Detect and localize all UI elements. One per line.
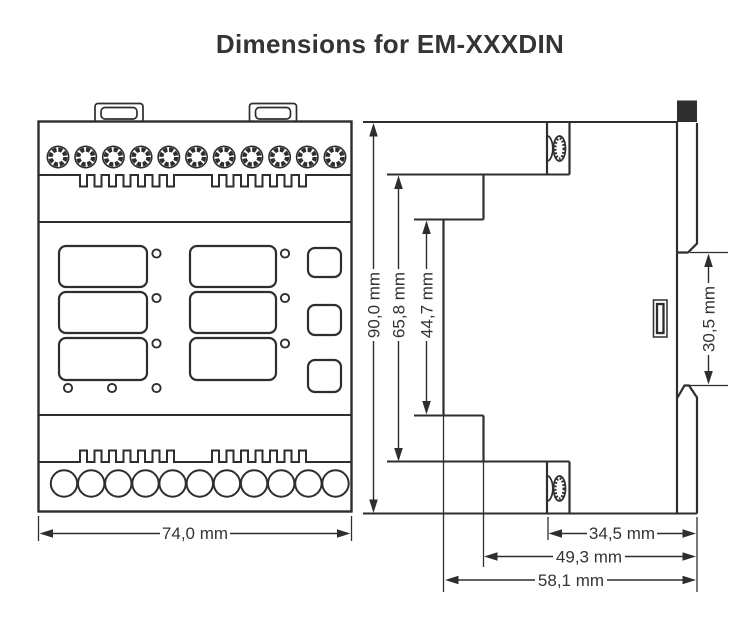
terminal-hole [132,470,158,496]
side-terminal-block-top [541,123,569,175]
dimension-label-overall-depth: 58,1 mm [538,571,604,590]
dimension-label-rear-depth: 34,5 mm [589,524,655,543]
side-terminal-screw [554,476,566,501]
dimension-label-mid-depth: 49,3 mm [556,548,622,567]
page-title: Dimensions for EM-XXXDIN [13,30,754,58]
dimension-label-overall-height: 90,0 mm [365,272,384,338]
dimension-label-cover-height: 65,8 mm [390,272,409,338]
display-window [190,292,276,333]
din-rail-cap [677,101,697,123]
display-window [190,246,276,287]
button [308,305,341,335]
dimension-label-overall-width: 74,0 mm [162,524,228,543]
din-hook-lower [678,386,698,514]
terminal-hole [51,470,77,496]
side-terminal-block-bottom [541,462,569,514]
display-window [59,246,147,287]
terminal-hole [187,470,213,496]
terminal-hole [268,470,294,496]
dimension-mid-depth: 49,3 mm [484,548,696,567]
terminal-hole [105,470,131,496]
dimension-label-face-height: 44,7 mm [418,272,437,338]
side-step-profile [387,175,570,463]
dimensions-diagram: Dimensions for EM-XXXDIN [0,0,754,633]
display-window [190,338,276,380]
dimension-rear-depth: 34,5 mm [549,524,697,543]
terminal-hole [241,470,267,496]
din-hook-upper [678,123,698,253]
terminal-hole [78,470,104,496]
front-buttons [308,248,341,392]
display-window [59,292,147,333]
terminal-hole [159,470,185,496]
terminal-holes-bottom [51,470,349,496]
mounting-tab-right [250,104,297,123]
dimension-overall-width: 74,0 mm [40,524,351,543]
dimension-overall-height: 90,0 mm [365,123,384,513]
button [308,248,341,277]
mounting-tab-left [95,104,143,123]
din-clip [654,300,668,337]
technical-drawing: 90,0 mm 65,8 mm 44,7 mm 30,5 mm [0,0,754,633]
dimension-overall-depth: 58,1 mm [445,571,696,590]
dimension-cover-height: 65,8 mm [390,176,409,462]
terminal-hole [214,470,240,496]
dimension-label-din-gap: 30,5 mm [700,286,719,352]
display-window [59,338,147,380]
side-view [363,101,697,514]
dimension-face-height: 44,7 mm [418,221,437,415]
front-view [39,104,352,512]
terminal-hole [322,470,348,496]
terminal-hole [295,470,321,496]
side-terminal-screw [554,136,566,161]
button [308,360,341,392]
dimension-din-gap: 30,5 mm [700,254,719,385]
